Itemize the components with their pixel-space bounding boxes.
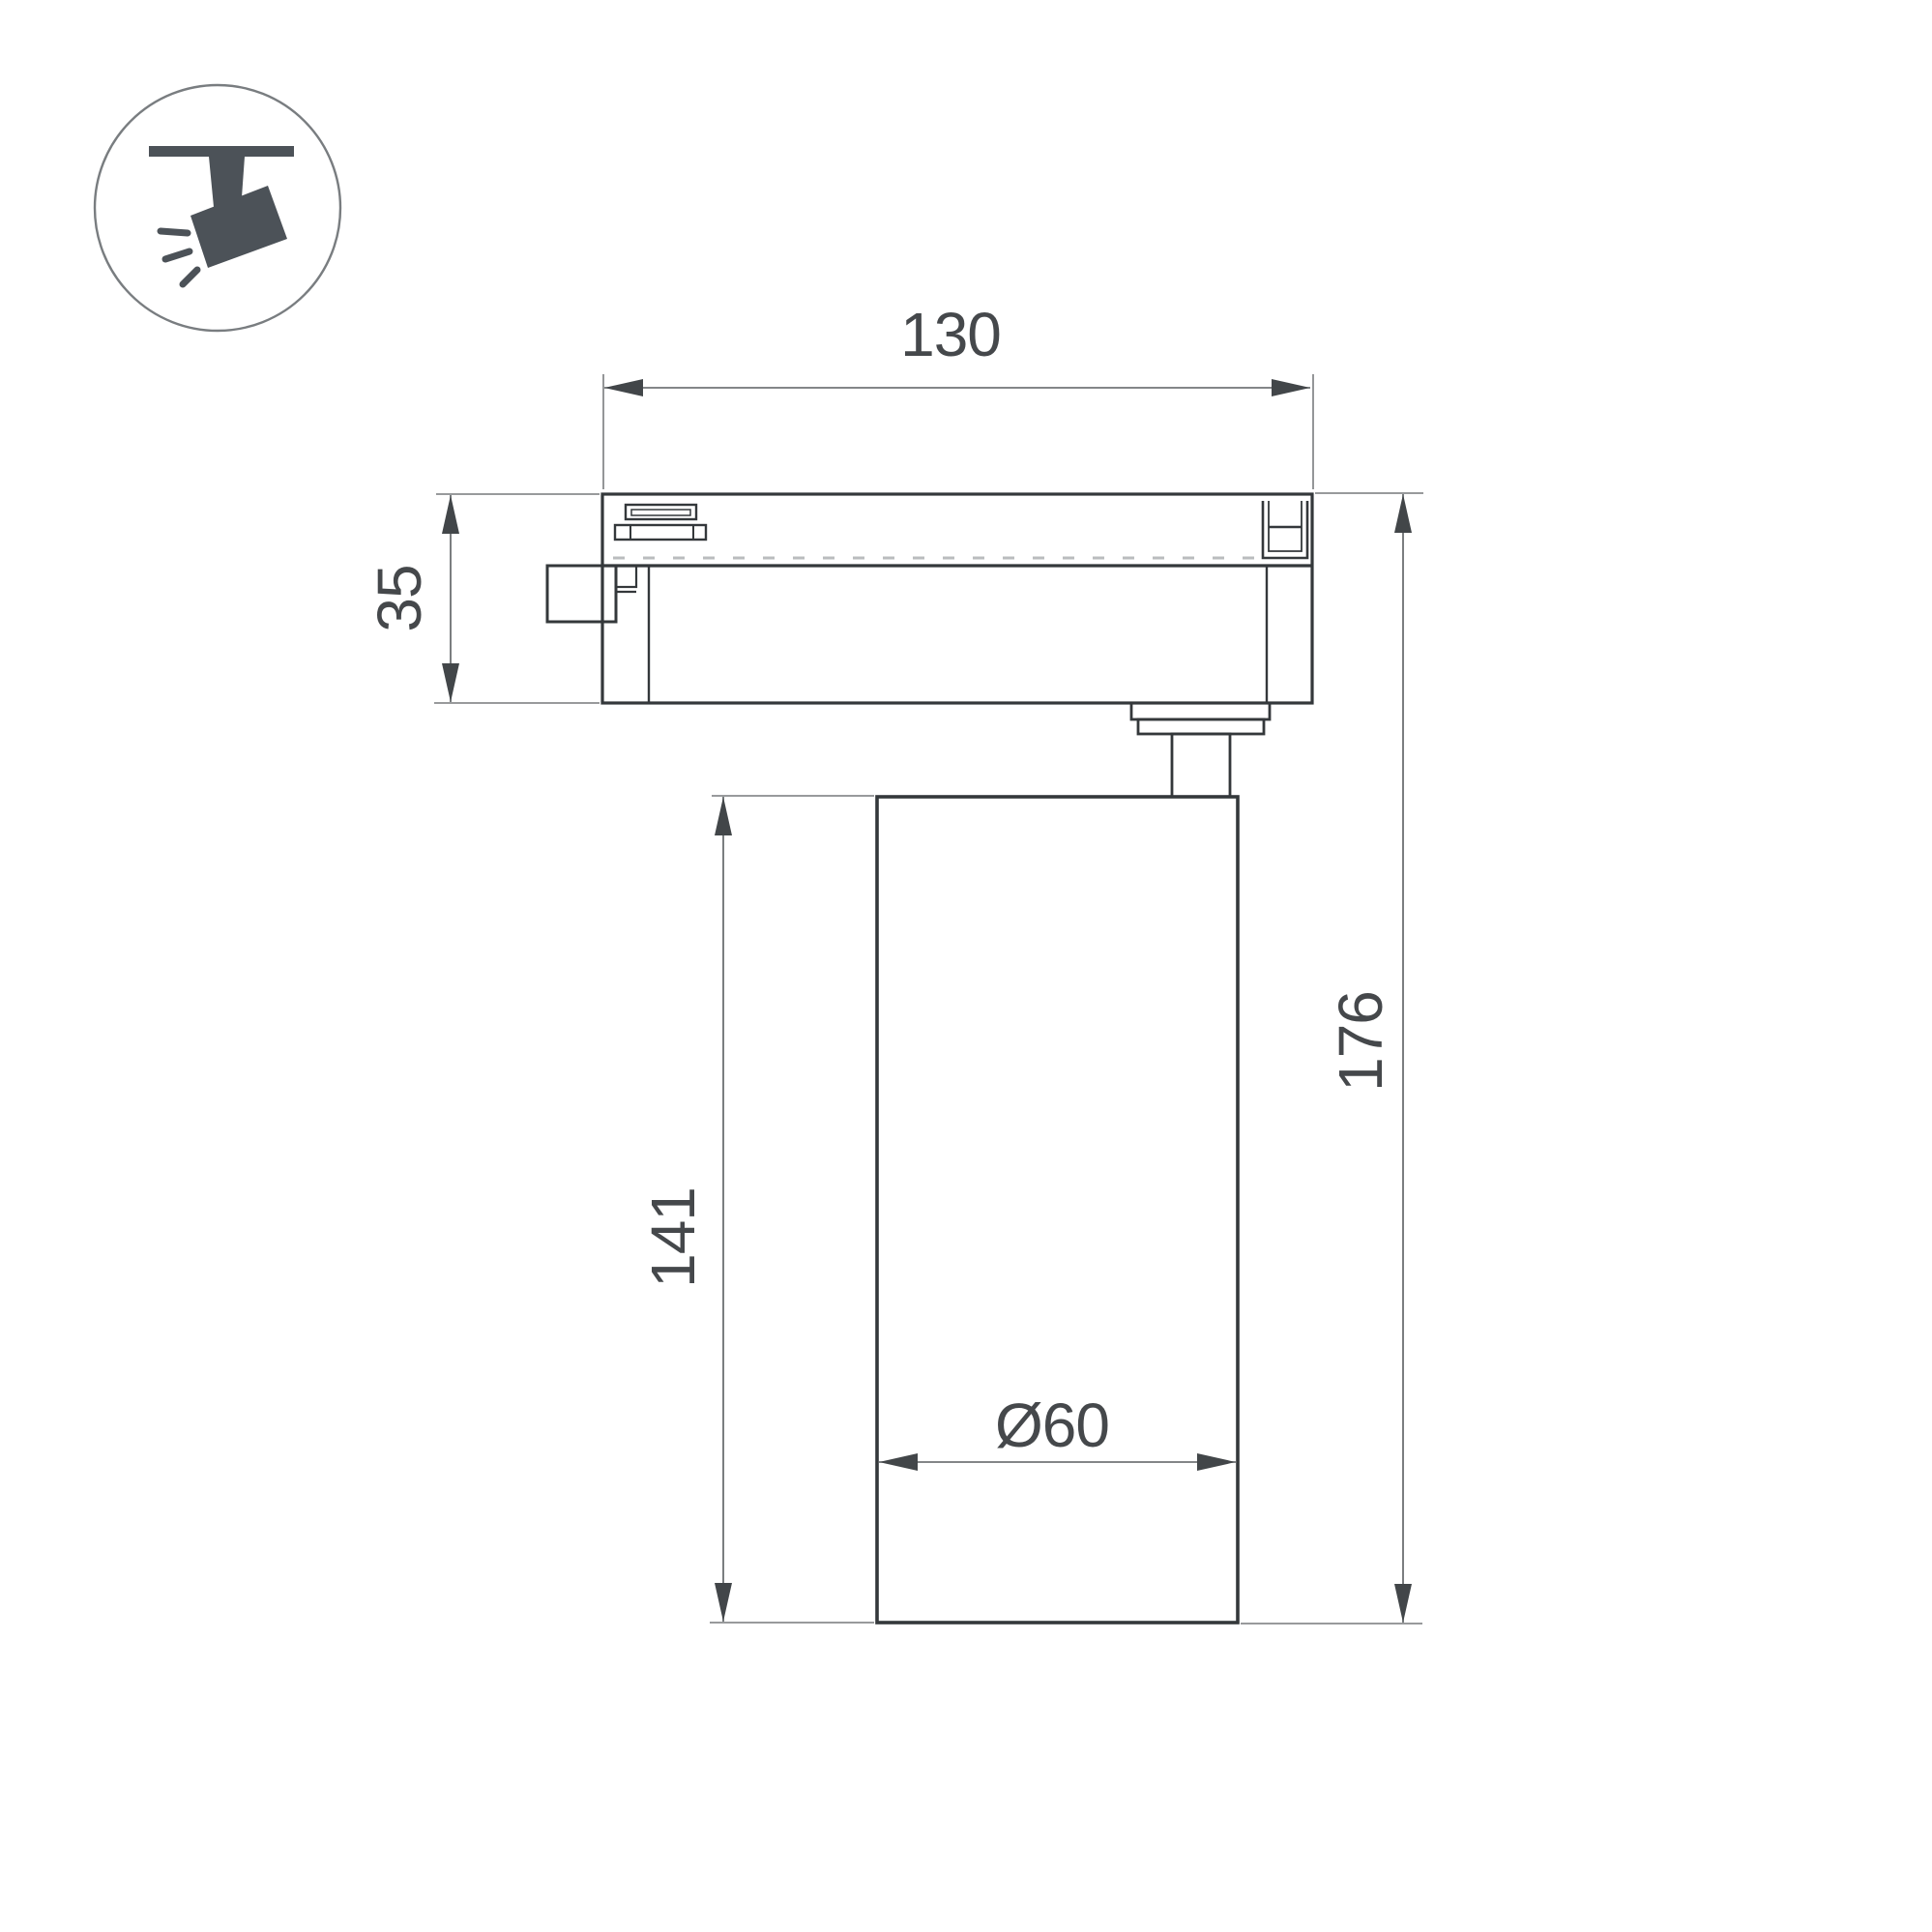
dimension-label-track-width: 130 bbox=[900, 300, 1001, 369]
arrowhead-right bbox=[1197, 1453, 1236, 1471]
mount-step-2 bbox=[1138, 719, 1264, 734]
arrowhead-down bbox=[1394, 1584, 1412, 1623]
dimension-track-width: 130 bbox=[603, 300, 1313, 489]
technical-drawing-page: 130 35 141 176 bbox=[0, 0, 1932, 1932]
adapter-lever-tab bbox=[616, 566, 636, 587]
arrowhead-up bbox=[442, 495, 459, 534]
dimension-label-total-height: 176 bbox=[1326, 991, 1395, 1092]
arrowhead-left bbox=[879, 1453, 918, 1471]
adapter-contact-upper bbox=[626, 505, 696, 519]
track-light-icon bbox=[95, 85, 340, 331]
dimension-label-body-height: 141 bbox=[638, 1187, 708, 1288]
arrowhead-up bbox=[1394, 494, 1412, 533]
adapter-outline bbox=[602, 494, 1312, 703]
dimension-label-adapter-height: 35 bbox=[365, 565, 434, 631]
icon-ray-1 bbox=[161, 231, 188, 233]
icon-track-bar bbox=[149, 146, 294, 157]
dimension-body-height: 141 bbox=[638, 796, 874, 1623]
lamp-body bbox=[877, 797, 1238, 1623]
dimension-label-body-diameter: Ø60 bbox=[995, 1390, 1109, 1460]
pivot-stem bbox=[1172, 734, 1230, 797]
arrowhead-left bbox=[604, 379, 643, 396]
track-adapter bbox=[547, 494, 1312, 703]
mount-steps bbox=[1131, 703, 1270, 797]
dimension-body-diameter: Ø60 bbox=[879, 1390, 1236, 1471]
arrowhead-down bbox=[442, 663, 459, 702]
dimension-total-height: 176 bbox=[1241, 493, 1423, 1624]
arrowhead-down bbox=[715, 1583, 732, 1622]
mount-step-1 bbox=[1131, 703, 1270, 719]
adapter-lock-lever bbox=[547, 566, 616, 622]
technical-drawing-svg: 130 35 141 176 bbox=[0, 0, 1932, 1932]
adapter-contact-lower bbox=[615, 525, 706, 540]
arrowhead-right bbox=[1272, 379, 1310, 396]
adapter-contact-upper-inner bbox=[631, 510, 690, 515]
dimension-adapter-height: 35 bbox=[365, 494, 600, 703]
fixture-drawing bbox=[547, 494, 1312, 1623]
arrowhead-up bbox=[715, 797, 732, 835]
